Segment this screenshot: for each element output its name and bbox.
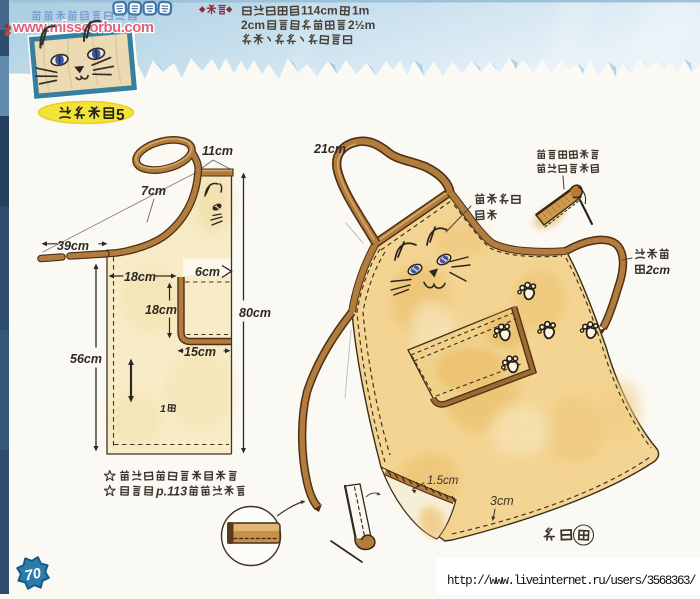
svg-text:2cm: 2cm (645, 263, 670, 277)
svg-text:2cm: 2cm (241, 18, 265, 32)
svg-text:39cm: 39cm (57, 239, 89, 253)
svg-text:2½m: 2½m (348, 18, 375, 32)
svg-text:21cm: 21cm (313, 142, 346, 156)
svg-text:www.misscorbu.com: www.misscorbu.com (12, 20, 154, 36)
svg-text:18cm: 18cm (124, 270, 156, 284)
svg-text:http://www.liveinternet.ru/use: http://www.liveinternet.ru/users/3568363… (447, 574, 696, 588)
svg-text:18cm: 18cm (145, 303, 177, 317)
svg-text:11cm: 11cm (202, 144, 233, 158)
svg-text:114cm: 114cm (301, 4, 338, 18)
svg-text:80cm: 80cm (239, 306, 271, 320)
svg-text:5: 5 (116, 107, 125, 124)
svg-text:6cm: 6cm (195, 265, 220, 279)
svg-text:56cm: 56cm (70, 352, 102, 366)
svg-text:3cm: 3cm (490, 494, 514, 508)
svg-text:1.5cm: 1.5cm (427, 475, 459, 487)
svg-text:1m: 1m (352, 4, 369, 18)
svg-text:15cm: 15cm (184, 345, 216, 359)
svg-text:p.113: p.113 (155, 485, 187, 499)
svg-text:7cm: 7cm (141, 184, 166, 198)
svg-text:1: 1 (160, 403, 166, 415)
svg-text:70: 70 (23, 566, 42, 585)
